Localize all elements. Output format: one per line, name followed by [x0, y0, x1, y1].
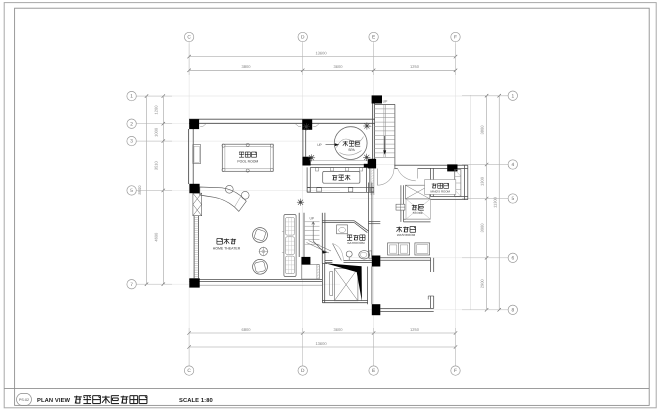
svg-text:1: 1	[511, 93, 514, 99]
svg-text:F: F	[454, 35, 457, 41]
svg-text:1250: 1250	[410, 327, 420, 332]
svg-text:4600: 4600	[154, 232, 159, 242]
svg-text:11300: 11300	[492, 196, 497, 208]
svg-text:1000: 1000	[154, 127, 159, 137]
svg-text:SPA: SPA	[348, 148, 355, 152]
svg-text:BATHROOM: BATHROOM	[347, 241, 365, 245]
svg-text:8: 8	[511, 307, 514, 313]
svg-text:SCALE 1:80: SCALE 1:80	[179, 397, 213, 404]
svg-text:MAID'S ROOM: MAID'S ROOM	[430, 190, 450, 194]
svg-text:3510: 3510	[154, 160, 159, 170]
svg-text:D: D	[301, 35, 305, 41]
svg-text:C: C	[187, 35, 191, 41]
svg-text:3000: 3000	[480, 223, 485, 233]
svg-text:3: 3	[130, 139, 133, 145]
svg-text:7: 7	[130, 282, 133, 288]
svg-text:6: 6	[511, 255, 514, 261]
svg-text:5: 5	[130, 188, 133, 194]
svg-text:WASHROOM: WASHROOM	[397, 233, 416, 237]
svg-text:1250: 1250	[410, 64, 420, 69]
svg-text:F: F	[454, 368, 457, 374]
svg-text:2: 2	[130, 121, 133, 127]
svg-text:1300: 1300	[480, 176, 485, 186]
svg-text:4: 4	[511, 162, 514, 168]
svg-text:1: 1	[130, 94, 133, 100]
svg-text:UP: UP	[383, 100, 388, 104]
svg-text:UP: UP	[317, 143, 322, 147]
svg-text:3800: 3800	[480, 125, 485, 135]
svg-text:UP: UP	[309, 216, 314, 220]
svg-text:STORE: STORE	[413, 211, 423, 215]
svg-text:1200: 1200	[154, 105, 159, 115]
svg-text:13600: 13600	[315, 341, 327, 346]
svg-text:E: E	[372, 35, 375, 41]
svg-text:13600: 13600	[315, 50, 327, 55]
svg-text:C: C	[187, 368, 191, 374]
svg-text:2900: 2900	[480, 279, 485, 289]
svg-text:5: 5	[511, 196, 514, 202]
svg-text:8500: 8500	[137, 185, 142, 195]
svg-text:PS-02: PS-02	[19, 398, 29, 402]
svg-text:HOME THEATER: HOME THEATER	[213, 246, 241, 250]
svg-text:3600: 3600	[334, 327, 344, 332]
svg-text:6800: 6800	[242, 327, 252, 332]
svg-text:3600: 3600	[334, 64, 344, 69]
svg-text:E: E	[372, 368, 375, 374]
svg-text:POOL ROOM: POOL ROOM	[237, 160, 258, 164]
svg-text:3800: 3800	[242, 64, 252, 69]
svg-text:PLAN VIEW: PLAN VIEW	[37, 398, 71, 404]
svg-text:D: D	[301, 368, 305, 374]
